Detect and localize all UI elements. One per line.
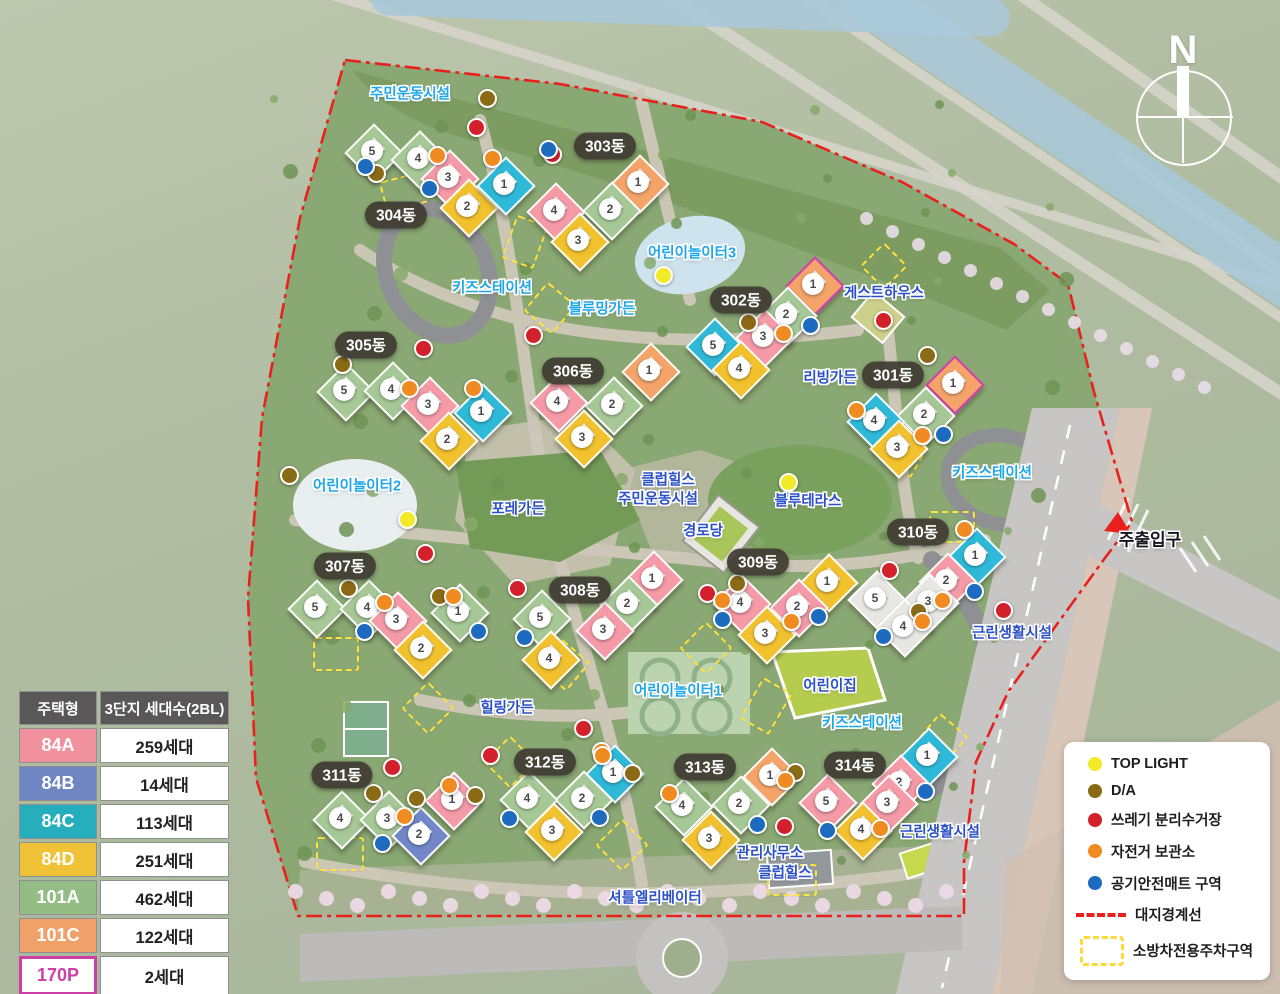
amenity-label: 블루테라스 — [775, 490, 842, 511]
legend-dot-swatch — [1088, 844, 1102, 858]
amenity-label: 근린생활시설 — [900, 821, 980, 842]
amenity-label: 주출입구 — [1119, 526, 1182, 551]
amenity-label: 클럽힐스 — [641, 469, 694, 490]
amenity-label: 힐링가든 — [480, 697, 533, 718]
unit-type-cell: 101A — [19, 880, 97, 915]
amenity-label: 어린이집 — [803, 675, 856, 696]
table-row: 84D251세대 — [19, 842, 229, 877]
legend-dot-swatch — [1088, 876, 1102, 890]
legend-item: 공기안전매트 구역 — [1076, 873, 1258, 894]
unit-count-cell: 2세대 — [100, 956, 229, 994]
building-label-pill: 311동 — [311, 762, 372, 789]
legend-item: TOP LIGHT — [1076, 756, 1258, 772]
building-label-pill: 313동 — [674, 754, 736, 781]
legend-dot-swatch — [1088, 784, 1102, 798]
compass-north: N — [1133, 30, 1233, 165]
compass-n-letter: N — [1169, 30, 1198, 70]
amenity-label: 클럽힐스 — [758, 862, 811, 883]
unit-count-cell: 259세대 — [100, 728, 229, 763]
building-label-pill: 312동 — [514, 749, 576, 776]
building-label-pill: 310동 — [887, 519, 949, 546]
unit-count-cell: 122세대 — [100, 918, 229, 953]
table-row: 101A462세대 — [19, 880, 229, 915]
amenity-label: 어린이놀이터1 — [634, 680, 722, 701]
amenity-label: 포레가든 — [491, 498, 544, 519]
legend-item: 소방차전용주차구역 — [1076, 936, 1258, 966]
legend-item: 자전거 보관소 — [1076, 841, 1258, 862]
amenity-label: 주민운동시설 — [370, 83, 450, 104]
amenity-label: 주민운동시설 — [618, 488, 698, 509]
building-label-pill: 307동 — [314, 553, 376, 580]
unit-count-cell: 462세대 — [100, 880, 229, 915]
amenity-label: 키즈스테이션 — [952, 462, 1032, 483]
legend-dot-swatch — [1088, 813, 1102, 827]
unit-type-cell: 84C — [19, 804, 97, 839]
unit-count-cell: 14세대 — [100, 766, 229, 801]
amenity-label: 블루밍가든 — [569, 298, 636, 319]
table-row: 84A259세대 — [19, 728, 229, 763]
compass-north-bar — [1177, 66, 1189, 117]
unit-type-cell: 84A — [19, 728, 97, 763]
unit-type-table: 주택형 3단지 세대수(2BL) 84A259세대84B14세대84C113세대… — [16, 688, 232, 994]
building-label-pill: 306동 — [542, 358, 604, 385]
fire-lane-swatch — [1080, 936, 1124, 966]
legend-label: 자전거 보관소 — [1111, 841, 1195, 862]
unit-type-cell: 84B — [19, 766, 97, 801]
boundary-line-swatch — [1076, 913, 1126, 917]
legend-dot-swatch — [1088, 757, 1102, 771]
building-label-pill: 308동 — [549, 577, 611, 604]
legend-label: 공기안전매트 구역 — [1111, 873, 1222, 894]
legend-item: 대지경계선 — [1076, 904, 1258, 925]
amenity-label: 게스트하우스 — [844, 282, 924, 303]
building-label-pill: 309동 — [727, 549, 789, 576]
legend-label: 쓰레기 분리수거장 — [1111, 809, 1222, 830]
legend-label: 대지경계선 — [1135, 904, 1202, 925]
legend-item: D/A — [1076, 783, 1258, 799]
amenity-label: 근린생활시설 — [972, 622, 1052, 643]
building-label-pill: 302동 — [710, 287, 772, 314]
building-label-pill: 304동 — [365, 202, 427, 229]
building-label-pill: 303동 — [574, 133, 636, 160]
amenity-label: 관리사무소 — [737, 842, 804, 863]
unit-type-cell: 84D — [19, 842, 97, 877]
table-header-count: 3단지 세대수(2BL) — [100, 691, 229, 725]
table-row: 101C122세대 — [19, 918, 229, 953]
legend-label: D/A — [1111, 783, 1136, 799]
table-row: 84B14세대 — [19, 766, 229, 801]
unit-count-cell: 251세대 — [100, 842, 229, 877]
building-label-pill: 314동 — [824, 752, 886, 779]
unit-type-cell: 170P — [19, 956, 97, 994]
site-plan-map: 1243543211235454312124312435431212534124… — [0, 0, 1280, 994]
amenity-label: 셔틀엘리베이터 — [608, 887, 701, 908]
unit-type-cell: 101C — [19, 918, 97, 953]
legend-item: 쓰레기 분리수거장 — [1076, 809, 1258, 830]
amenity-label: 키즈스테이션 — [822, 712, 902, 733]
amenity-label: 경로당 — [683, 520, 723, 541]
table-row: 170P2세대 — [19, 956, 229, 994]
building-label-pill: 301동 — [862, 362, 924, 389]
table-row: 84C113세대 — [19, 804, 229, 839]
map-legend: TOP LIGHTD/A쓰레기 분리수거장자전거 보관소공기안전매트 구역대지경… — [1064, 742, 1270, 980]
amenity-label: 어린이놀이터2 — [313, 475, 401, 496]
amenity-label: 키즈스테이션 — [452, 277, 532, 298]
building-label-pill: 305동 — [335, 332, 397, 359]
legend-label: 소방차전용주차구역 — [1133, 940, 1253, 961]
unit-count-cell: 113세대 — [100, 804, 229, 839]
table-header-type: 주택형 — [19, 691, 97, 725]
legend-label: TOP LIGHT — [1111, 756, 1188, 772]
amenity-label: 리빙가든 — [803, 367, 856, 388]
amenity-label: 어린이놀이터3 — [648, 242, 736, 263]
